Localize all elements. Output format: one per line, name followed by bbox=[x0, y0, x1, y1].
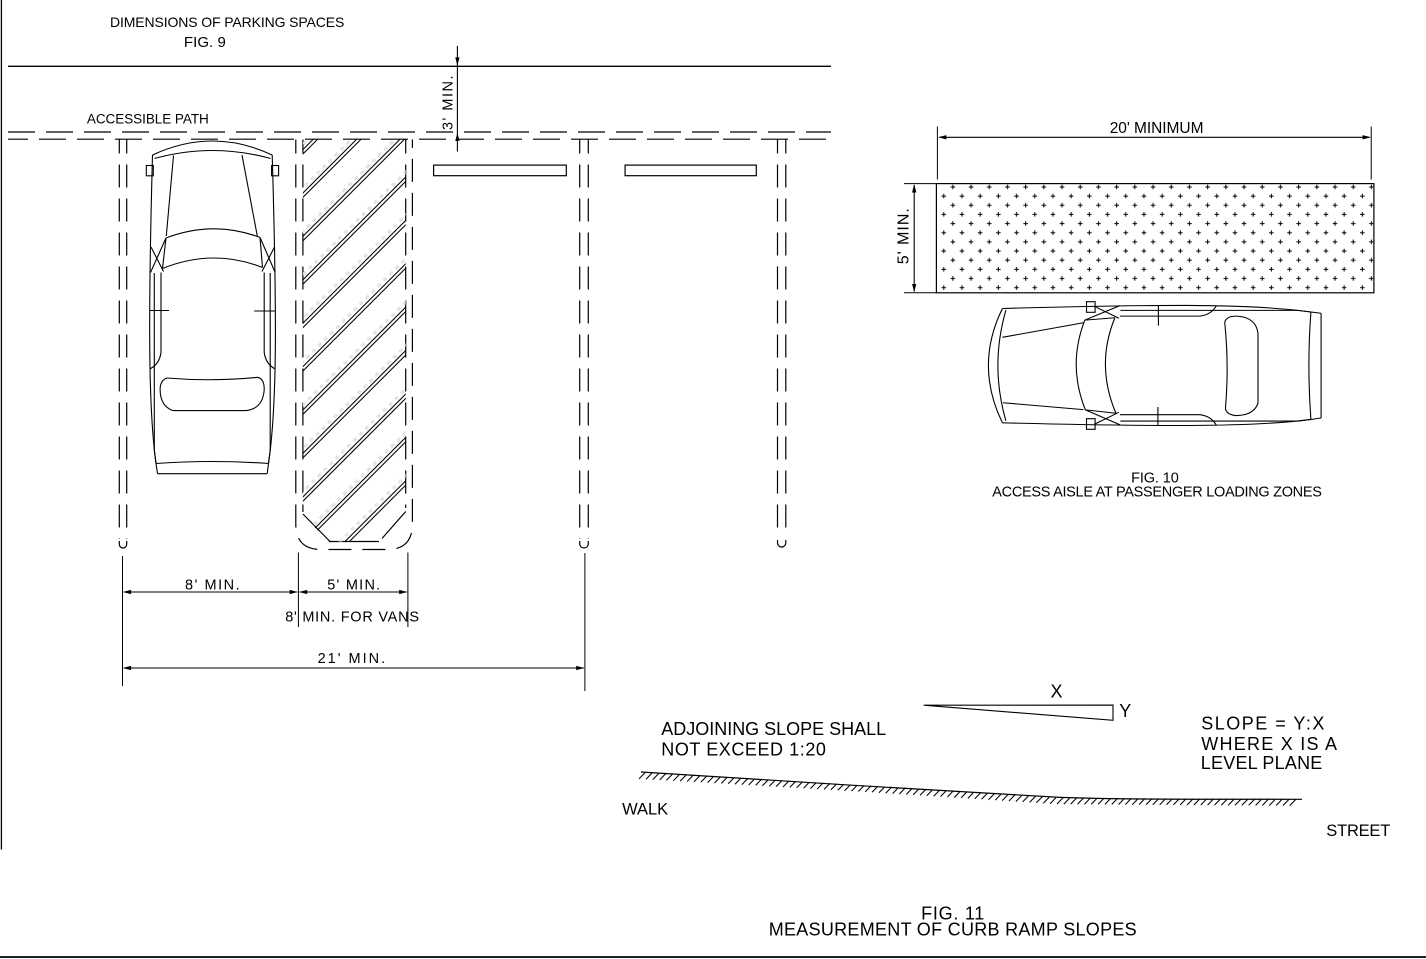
svg-text:5' MIN.: 5' MIN. bbox=[896, 208, 913, 264]
svg-text:DIMENSIONS OF PARKING SPACE: DIMENSIONS OF PARKING SPACES bbox=[110, 14, 344, 30]
svg-text:Y: Y bbox=[1119, 701, 1131, 721]
svg-text:STREET: STREET bbox=[1326, 822, 1390, 840]
svg-text:FIG. 9: FIG. 9 bbox=[184, 34, 226, 51]
svg-text:LEVEL PLANE: LEVEL PLANE bbox=[1201, 753, 1323, 773]
svg-text:ACCESSIBLE PATH: ACCESSIBLE PATH bbox=[87, 112, 209, 127]
svg-text:5' MIN.: 5' MIN. bbox=[327, 577, 380, 593]
svg-text:ACCESS AISLE AT PASSENGER: ACCESS AISLE AT PASSENGER LOADING ZONES bbox=[992, 485, 1322, 501]
svg-text:WHERE X IS A: WHERE X IS A bbox=[1201, 734, 1337, 754]
svg-text:8' MIN. FOR VANS: 8' MIN. FOR VANS bbox=[285, 609, 419, 625]
svg-text:WALK: WALK bbox=[622, 801, 668, 819]
svg-text:ADJOINING SLOPE SHALL: ADJOINING SLOPE SHALL bbox=[661, 719, 886, 739]
svg-text:21' MIN.: 21' MIN. bbox=[318, 651, 386, 667]
svg-text:NOT EXCEED 1:20: NOT EXCEED 1:20 bbox=[661, 740, 826, 760]
svg-text:20' MINIMUM: 20' MINIMUM bbox=[1110, 120, 1204, 137]
svg-text:X: X bbox=[1051, 682, 1063, 702]
svg-text:MEASUREMENT OF CURB RAMP S: MEASUREMENT OF CURB RAMP SLOPES bbox=[769, 919, 1137, 939]
svg-text:SLOPE = Y:X: SLOPE = Y:X bbox=[1201, 714, 1324, 734]
